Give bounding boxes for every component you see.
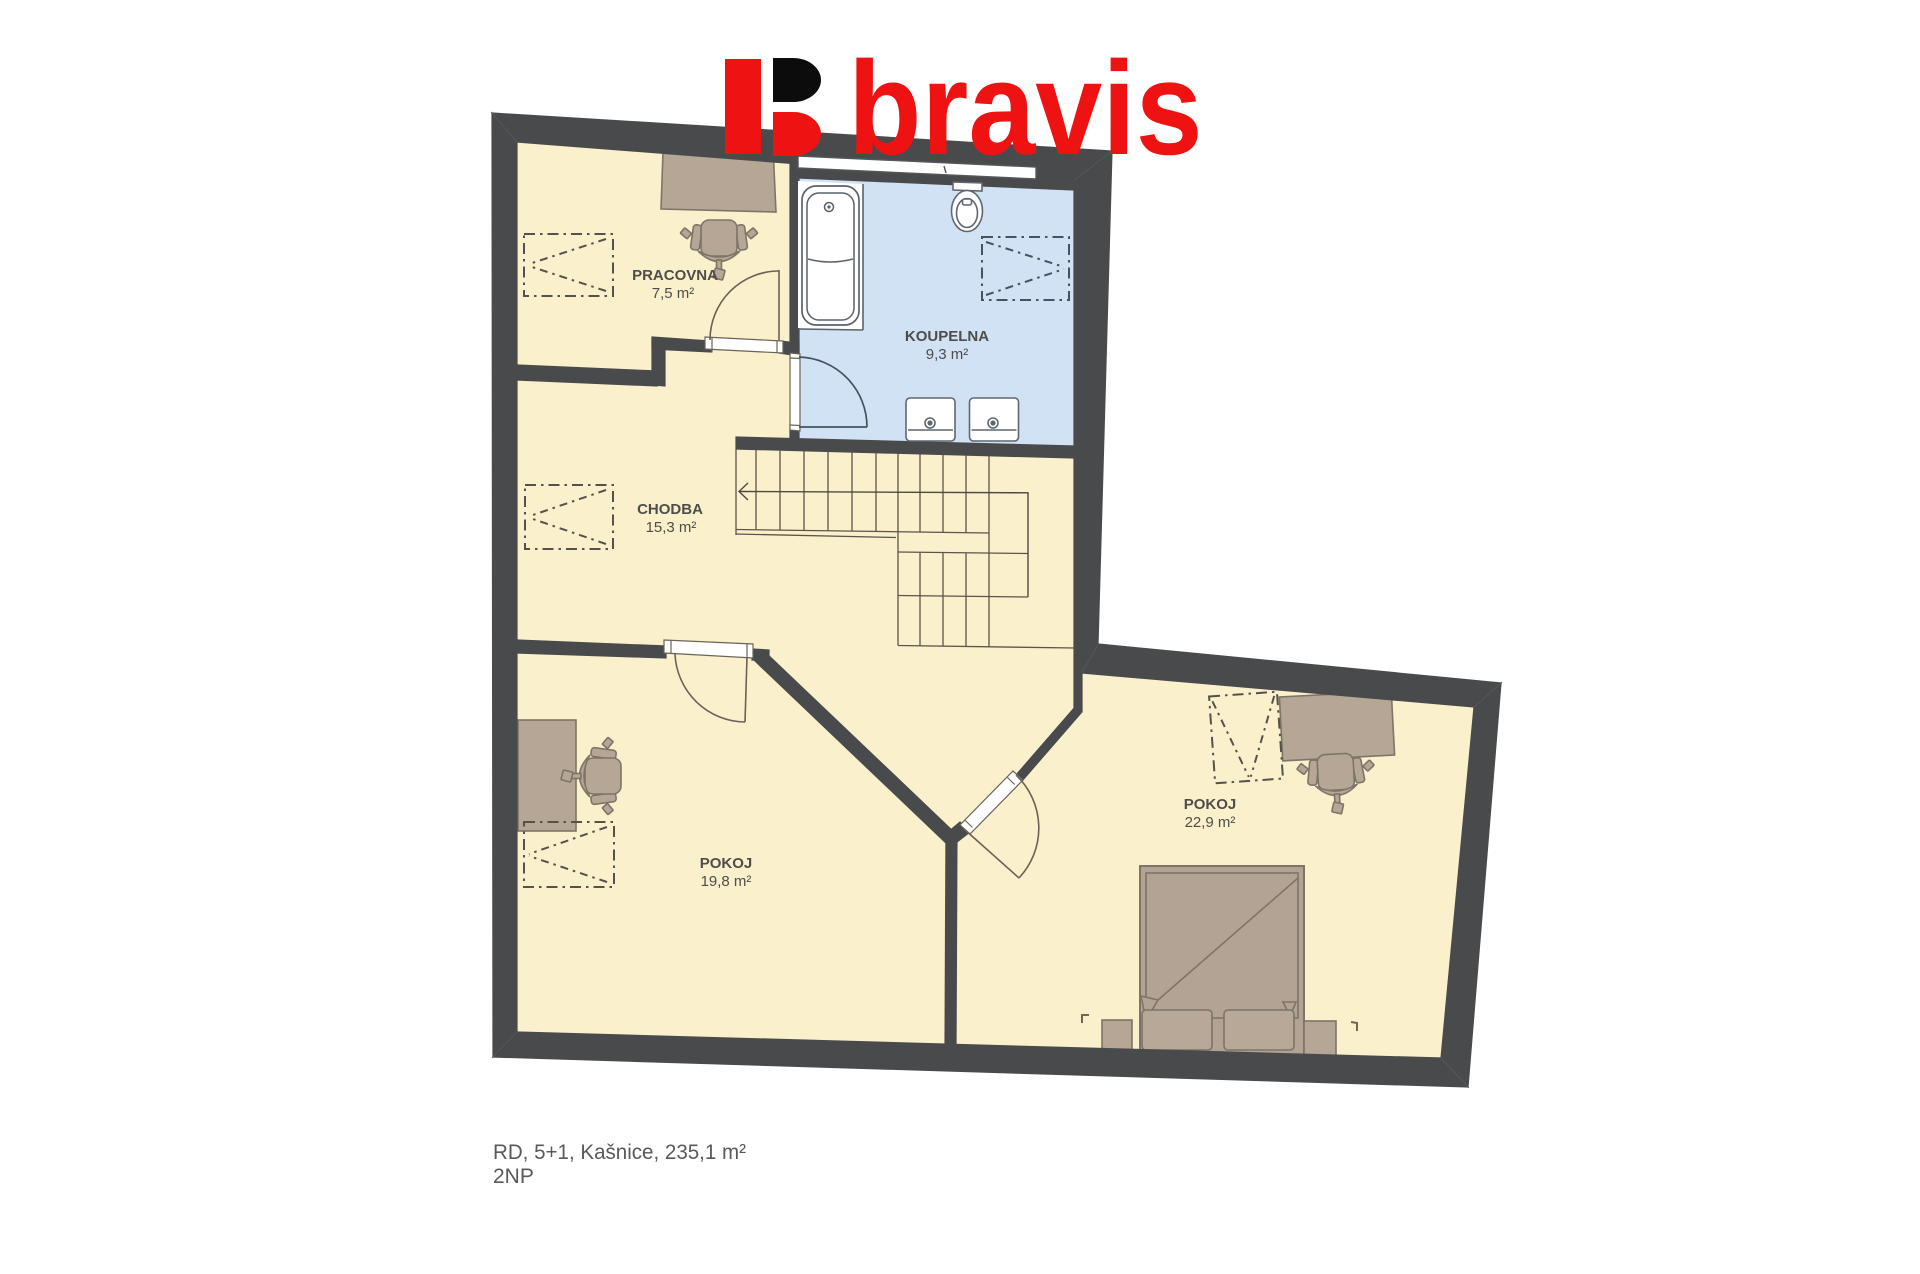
svg-text:POKOJ: POKOJ	[700, 855, 753, 872]
svg-text:PRACOVNA: PRACOVNA	[632, 267, 718, 284]
svg-text:22,9 m²: 22,9 m²	[1185, 814, 1236, 831]
svg-text:POKOJ: POKOJ	[1184, 796, 1237, 813]
svg-text:bravis: bravis	[848, 33, 1203, 182]
svg-text:19,8 m²: 19,8 m²	[701, 873, 752, 890]
svg-text:9,3 m²: 9,3 m²	[926, 346, 969, 363]
svg-text:KOUPELNA: KOUPELNA	[905, 328, 989, 345]
svg-text:15,3 m²: 15,3 m²	[646, 519, 697, 536]
svg-text:RD, 5+1, Kašnice, 235,1 m²: RD, 5+1, Kašnice, 235,1 m²	[493, 1141, 746, 1164]
svg-text:CHODBA: CHODBA	[637, 501, 703, 518]
svg-text:2NP: 2NP	[493, 1165, 534, 1188]
svg-text:7,5 m²: 7,5 m²	[652, 285, 695, 302]
